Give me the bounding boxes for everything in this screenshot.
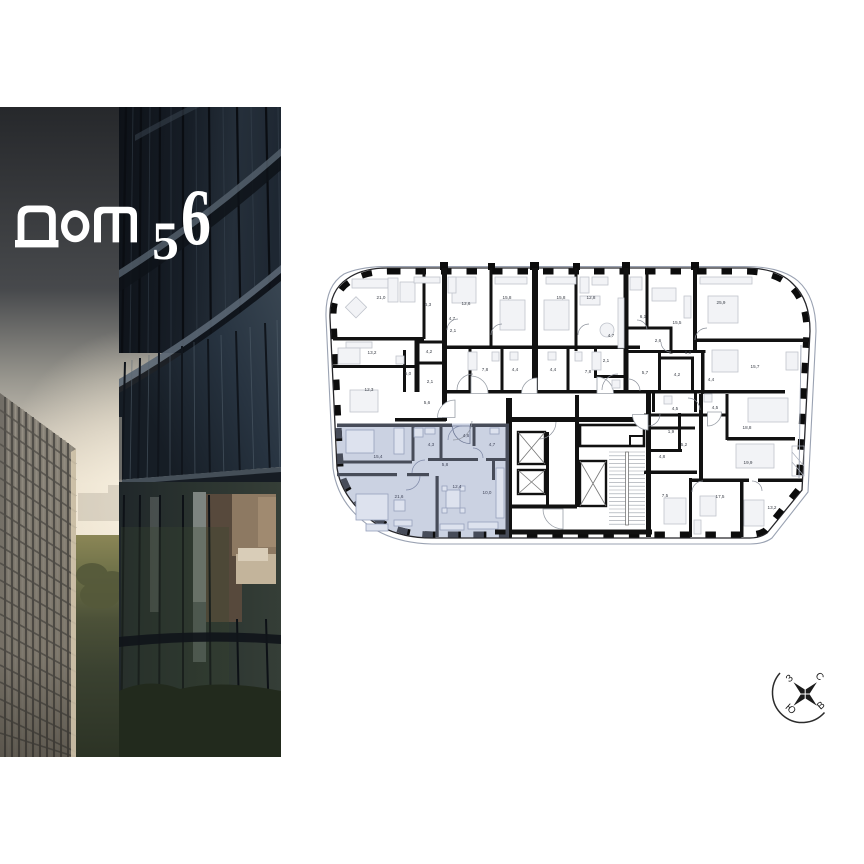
svg-text:7,8: 7,8 bbox=[482, 367, 489, 372]
svg-text:12,3: 12,3 bbox=[365, 387, 374, 392]
svg-text:15,4: 15,4 bbox=[374, 454, 383, 459]
svg-text:21,0: 21,0 bbox=[377, 295, 386, 300]
svg-text:6: 6 bbox=[181, 180, 211, 262]
svg-text:4,8: 4,8 bbox=[659, 454, 666, 459]
svg-text:4,7: 4,7 bbox=[449, 316, 456, 321]
svg-text:15,8: 15,8 bbox=[503, 295, 512, 300]
svg-text:13,2: 13,2 bbox=[368, 350, 377, 355]
svg-text:2,1: 2,1 bbox=[450, 328, 457, 333]
svg-text:21,6: 21,6 bbox=[395, 494, 404, 499]
svg-text:4,7: 4,7 bbox=[489, 442, 496, 447]
svg-text:4,4: 4,4 bbox=[512, 367, 519, 372]
svg-text:18,8: 18,8 bbox=[743, 425, 752, 430]
svg-text:17,5: 17,5 bbox=[716, 494, 725, 499]
svg-text:12,6: 12,6 bbox=[462, 301, 471, 306]
svg-text:4,4: 4,4 bbox=[550, 367, 557, 372]
svg-text:5,0: 5,0 bbox=[405, 371, 412, 376]
svg-text:12,4: 12,4 bbox=[453, 484, 462, 489]
svg-text:7,5: 7,5 bbox=[662, 493, 669, 498]
svg-text:5,2: 5,2 bbox=[681, 442, 688, 447]
svg-text:5,6: 5,6 bbox=[424, 400, 431, 405]
svg-text:15,8: 15,8 bbox=[557, 295, 566, 300]
svg-text:15,5: 15,5 bbox=[673, 320, 682, 325]
svg-text:1,9: 1,9 bbox=[668, 429, 675, 434]
svg-text:6,1: 6,1 bbox=[640, 314, 647, 319]
svg-text:5: 5 bbox=[152, 211, 179, 271]
svg-text:С: С bbox=[813, 670, 826, 683]
svg-text:25,9: 25,9 bbox=[717, 300, 726, 305]
svg-text:В: В bbox=[815, 699, 828, 712]
svg-text:5,8: 5,8 bbox=[442, 462, 449, 467]
svg-text:4,6: 4,6 bbox=[463, 433, 470, 438]
svg-text:2,1: 2,1 bbox=[603, 358, 610, 363]
svg-text:4,7: 4,7 bbox=[608, 333, 615, 338]
svg-text:12,8: 12,8 bbox=[587, 295, 596, 300]
svg-text:10,0: 10,0 bbox=[483, 490, 492, 495]
svg-text:4,2: 4,2 bbox=[674, 372, 681, 377]
svg-text:4,2: 4,2 bbox=[426, 349, 433, 354]
svg-text:4,5: 4,5 bbox=[672, 406, 679, 411]
svg-text:2,6: 2,6 bbox=[655, 338, 662, 343]
svg-text:13,2: 13,2 bbox=[768, 505, 777, 510]
svg-text:19,9: 19,9 bbox=[744, 460, 753, 465]
svg-text:15,7: 15,7 bbox=[751, 364, 760, 369]
svg-text:6,0: 6,0 bbox=[685, 350, 692, 355]
svg-text:4,3: 4,3 bbox=[428, 442, 435, 447]
svg-text:7,8: 7,8 bbox=[585, 369, 592, 374]
svg-text:4,4: 4,4 bbox=[708, 377, 715, 382]
svg-text:4,5: 4,5 bbox=[712, 405, 719, 410]
svg-text:5,7: 5,7 bbox=[642, 370, 649, 375]
svg-text:6,3: 6,3 bbox=[425, 302, 432, 307]
svg-text:З: З bbox=[784, 673, 796, 685]
svg-text:2,1: 2,1 bbox=[427, 379, 434, 384]
